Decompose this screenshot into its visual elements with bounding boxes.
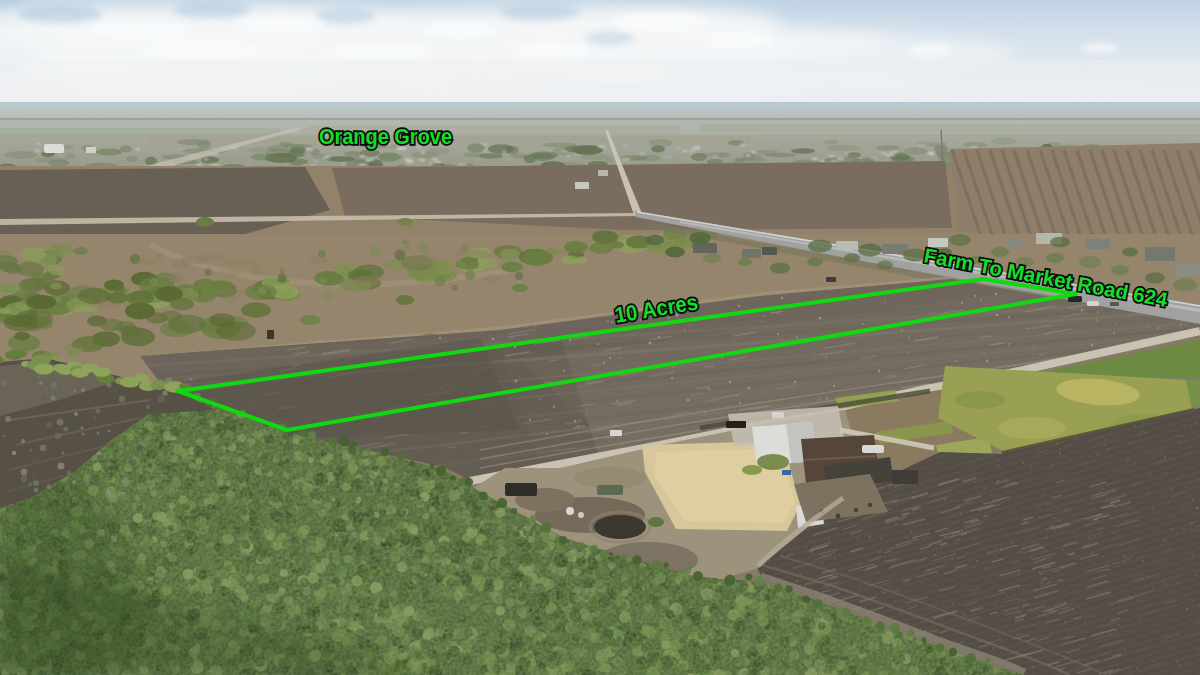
svg-text:Orange Grove: Orange Grove (319, 124, 452, 149)
